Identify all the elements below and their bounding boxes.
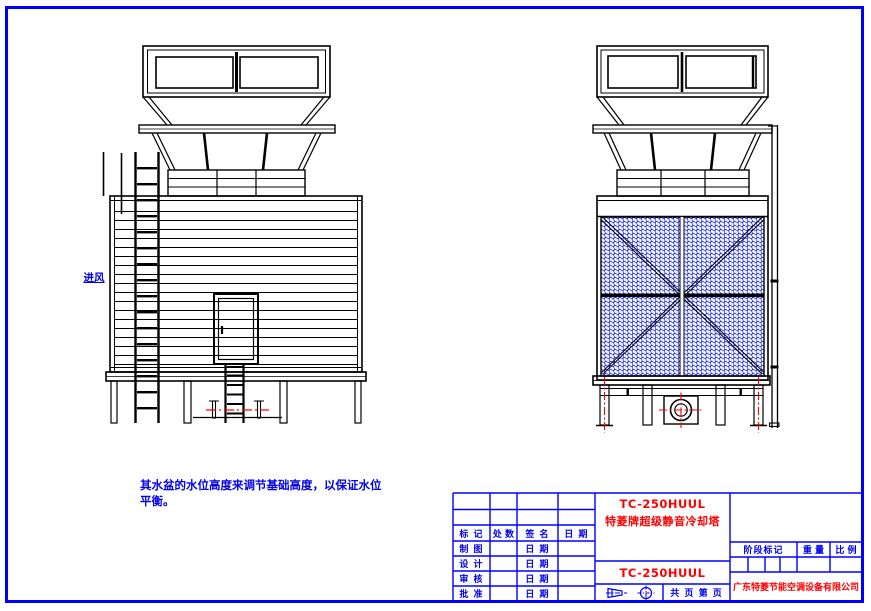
tower-front-view — [593, 46, 779, 433]
air-inlet-label: 进风 — [79, 269, 109, 286]
header-mark: 标 记 — [453, 525, 490, 541]
basin-ladder — [226, 363, 244, 423]
fan-cowl-side — [143, 46, 330, 125]
row-check-label: 审 核 — [453, 571, 490, 586]
row-approve-label: 批 准 — [453, 586, 490, 601]
stage-mark-header: 阶段标记 — [730, 542, 797, 557]
air-inlet-mesh-panel — [597, 196, 768, 380]
fan-stack-flare-side — [152, 133, 321, 196]
scale-header: 比 例 — [830, 542, 862, 557]
projection-symbols-cell — [595, 584, 663, 601]
projection-target-icon — [637, 585, 655, 601]
fan-deck-side — [139, 125, 335, 133]
fan-stack-flare-front — [604, 133, 761, 196]
header-date: 日 期 — [558, 525, 595, 541]
tower-side-view — [104, 46, 367, 423]
fan-deck-front — [593, 125, 772, 133]
product-name: 特菱牌超级静音冷却塔 — [595, 512, 730, 529]
company-name: 广东特菱节能空调设备有限公司 — [730, 572, 862, 601]
page-count-label: 共 页 第 页 — [663, 584, 730, 601]
model-number-repeat: TC-250HUUL — [595, 561, 730, 584]
row-design-date: 日 期 — [517, 556, 558, 571]
header-signature: 签 名 — [517, 525, 558, 541]
header-count: 处 数 — [490, 525, 517, 541]
engineering-drawing-canvas — [0, 0, 871, 611]
fan-cowl-front — [597, 46, 768, 125]
note-line-1: 其水盆的水位高度来调节基础高度，以保证水位 — [140, 477, 440, 493]
row-check-date: 日 期 — [517, 571, 558, 586]
note-line-2: 平衡。 — [140, 493, 440, 509]
first-angle-projection-icon — [604, 586, 628, 600]
row-drawn-date: 日 期 — [517, 541, 558, 556]
row-design-label: 设 计 — [453, 556, 490, 571]
model-number: TC-250HUUL — [595, 495, 730, 512]
drawing-sheet: 进风 其水盆的水位高度来调节基础高度，以保证水位 平衡。 标 记 处 数 签 名… — [0, 0, 871, 611]
row-approve-date: 日 期 — [517, 586, 558, 601]
weight-header: 重 量 — [797, 542, 830, 557]
row-drawn-label: 制 图 — [453, 541, 490, 556]
drawing-note: 其水盆的水位高度来调节基础高度，以保证水位 平衡。 — [140, 477, 440, 509]
